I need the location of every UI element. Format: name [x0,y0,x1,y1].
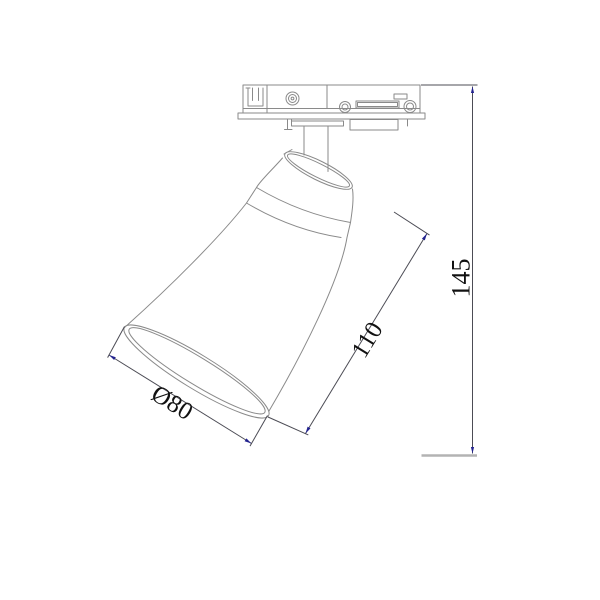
head-right-edge [269,189,353,411]
dimension-height: 145 [421,85,478,454]
adapter-clip-slot [246,88,263,106]
stem-lines [304,127,328,172]
adapter-body [243,85,420,113]
track-adapter [238,85,425,130]
head-opening-rim [116,313,278,430]
adapter-knob-left [340,102,351,113]
adapter-screw [286,92,299,105]
track-spotlight-dimension-drawing: Ø80 110 145 [0,0,600,600]
adapter-lower-plate-right [350,120,408,131]
adapter-knob-right [404,101,416,113]
adapter-flange [238,113,425,119]
dimension-length: 110 [268,212,430,435]
head-ring-band [247,188,351,238]
stem [304,127,328,172]
head-left-edge [125,158,283,328]
head-top-cap [281,145,357,195]
adapter-contact-slot [356,101,399,108]
dimension-label-height: 145 [447,259,476,298]
length-extension-lines [268,212,430,435]
adapter-lower-plate-left [285,119,344,130]
technical-drawing-page: Ø80 110 145 [0,0,600,600]
adapter-window [394,94,407,99]
lamp-head [116,145,357,430]
